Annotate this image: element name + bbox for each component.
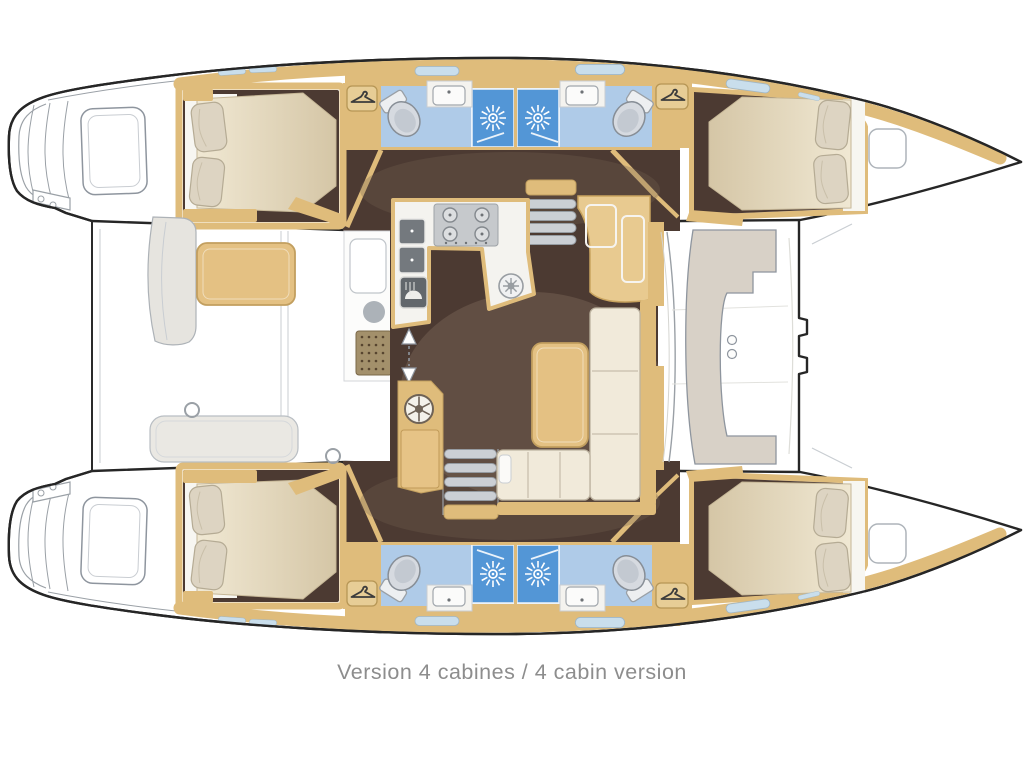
doormat <box>356 331 392 375</box>
oven <box>400 277 427 308</box>
floorplan-canvas: Version 4 cabines / 4 cabin version <box>0 0 1024 768</box>
forward-crossbeam <box>799 221 807 471</box>
stove <box>434 204 498 246</box>
fridge-cabinet <box>398 381 443 493</box>
salon-table <box>532 343 588 447</box>
forward-lounge-seat <box>686 230 776 464</box>
cupholder-icon <box>728 350 737 359</box>
forward-cockpit <box>672 230 793 464</box>
icebox <box>350 239 386 293</box>
catamaran-floorplan: Version 4 cabines / 4 cabin version <box>0 0 1024 768</box>
caption: Version 4 cabines / 4 cabin version <box>337 660 687 684</box>
winch-icon <box>363 301 385 323</box>
forward-bulkhead <box>648 366 664 470</box>
cockpit-side-bench <box>148 217 196 345</box>
round-burner <box>499 274 523 298</box>
cockpit-table <box>197 243 295 305</box>
sofa-cushions <box>590 308 640 500</box>
sofa-front-trim <box>497 502 656 515</box>
cupholder-icon <box>728 336 737 345</box>
cockpit-aft-bench <box>150 416 298 462</box>
aft-cockpit <box>148 217 396 463</box>
forward-door-curve <box>667 232 675 462</box>
